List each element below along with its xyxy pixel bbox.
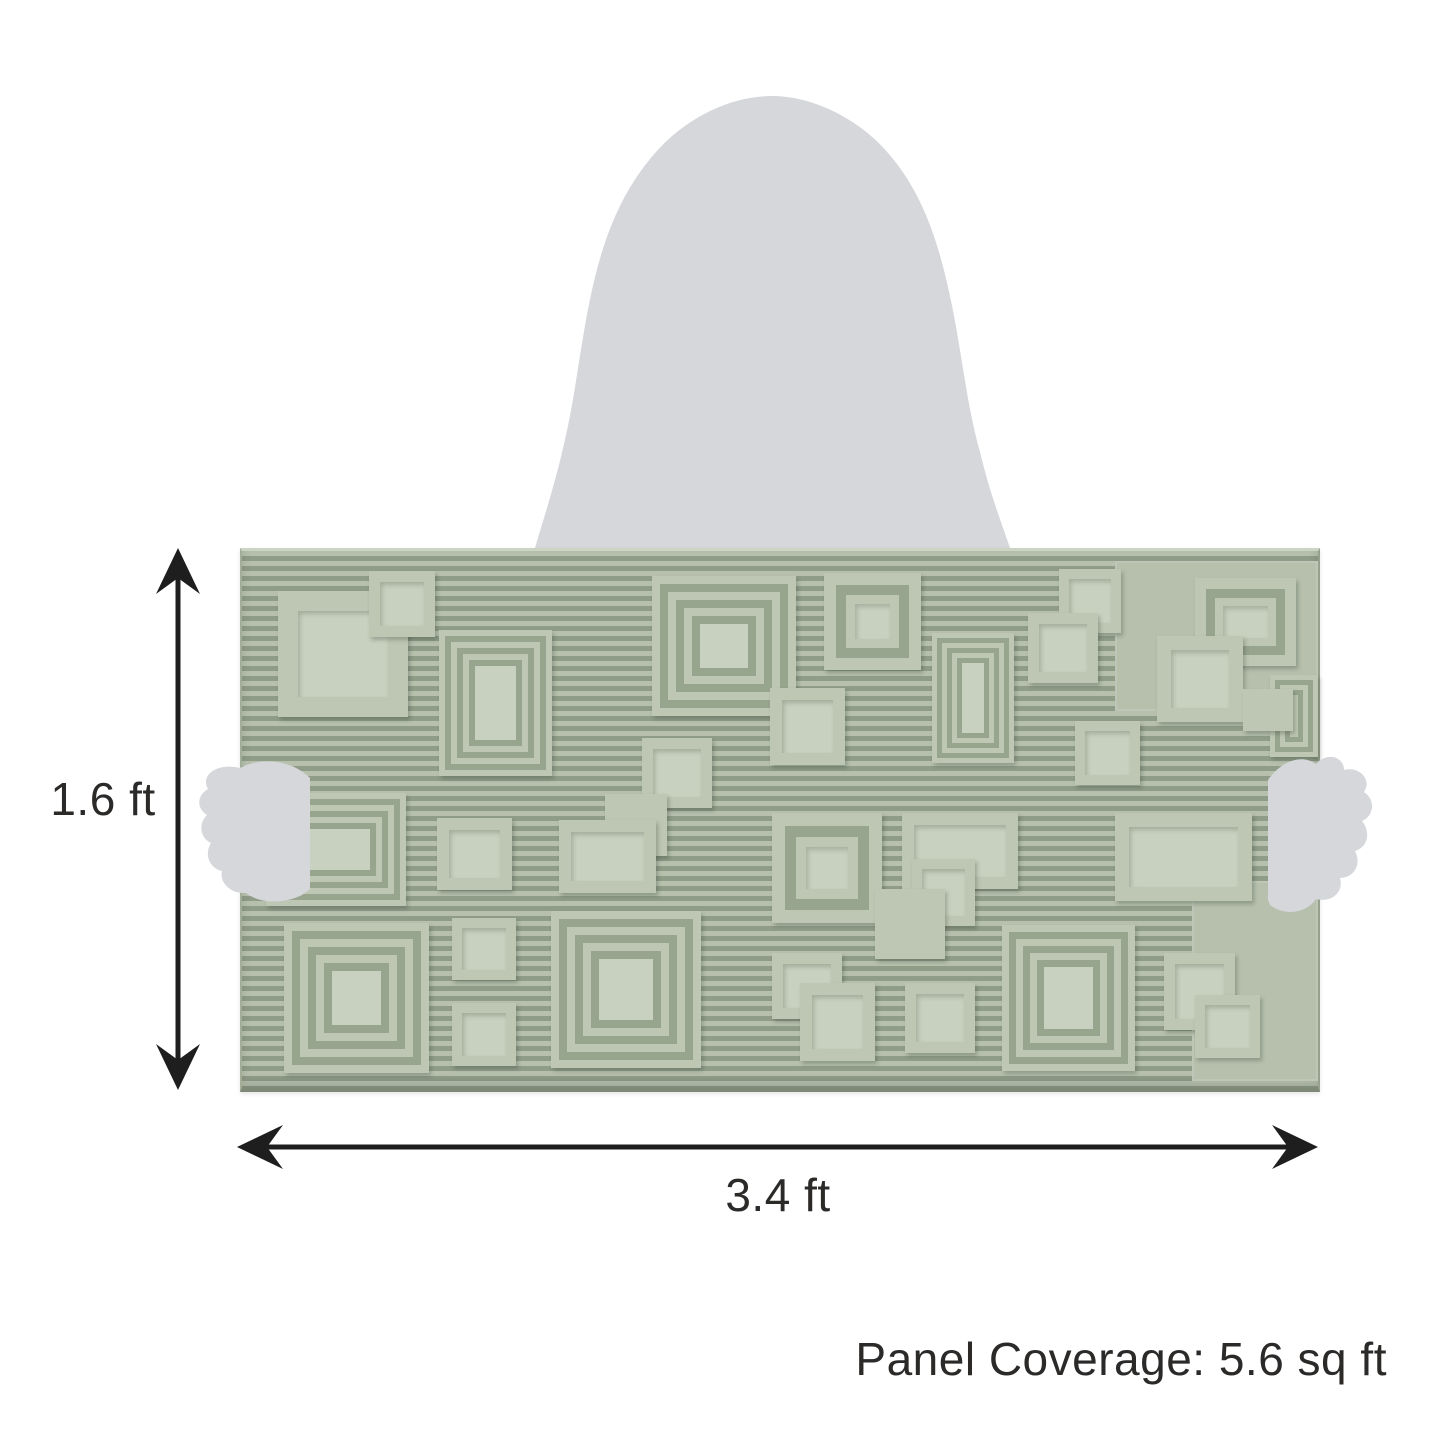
dimension-arrows — [0, 0, 1445, 1445]
panel-coverage-label: Panel Coverage: 5.6 sq ft — [855, 1332, 1387, 1386]
width-dimension-label: 3.4 ft — [240, 1168, 1316, 1222]
width-arrow — [237, 1125, 1318, 1169]
infographic-canvas: 1.6 ft 3.4 ft Panel Coverage: 5.6 sq ft — [0, 0, 1445, 1445]
height-dimension-label: 1.6 ft — [28, 772, 178, 826]
